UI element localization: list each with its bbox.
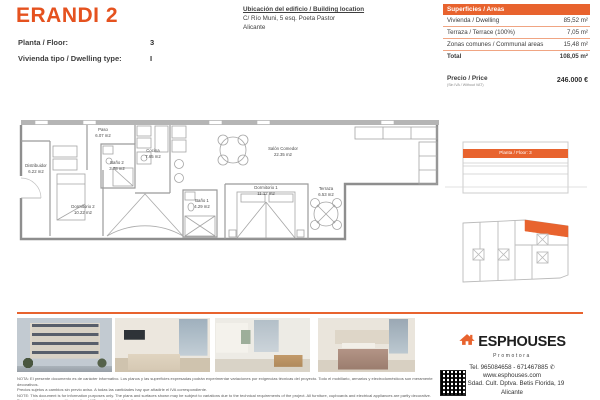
disclaimer-line: NOTA: El presente documento es de caráct… — [17, 376, 437, 387]
area-label: Terraza / Terrace (100%) — [447, 29, 515, 36]
photo-living-room — [115, 318, 210, 372]
room-label-dormitorio1: Dormitorio 111.12 m2 — [254, 185, 277, 196]
room-label-bano2: Baño 23.78 m2 — [109, 160, 125, 171]
area-value: 85,52 m² — [564, 17, 588, 24]
areas-total-row: Total 108,05 m² — [443, 51, 590, 62]
dwelling-type-row: Vivienda tipo / Dwelling type: I — [18, 54, 218, 63]
dwelling-type-label: Vivienda tipo / Dwelling type: — [18, 54, 122, 63]
room-label-terraza: Terraza6.53 m2 — [318, 186, 334, 197]
table-row: Zonas comunes / Communal areas 15,48 m² — [443, 39, 590, 51]
dwelling-type-value: I — [150, 54, 152, 63]
price-vat-note: (Sin IVA / Without VAT) — [447, 83, 484, 87]
areas-table-header: Superficies / Areas — [443, 4, 590, 15]
area-value: 15,48 m² — [564, 41, 588, 48]
brochure-page: ERANDI 2 Planta / Floor: 3 Vivienda tipo… — [0, 0, 600, 400]
room-label-cocina: Cocina7.65 m2 — [145, 148, 161, 159]
whatsapp-icon: ✆ — [550, 365, 555, 371]
area-value: 7,05 m² — [567, 29, 588, 36]
photo-kitchen — [215, 318, 310, 372]
floor-value: 3 — [150, 38, 154, 47]
total-label: Total — [447, 53, 461, 60]
floor-row: Planta / Floor: 3 — [18, 38, 218, 47]
table-row: Vivienda / Dwelling 85,52 m² — [443, 15, 590, 27]
building-location: Ubicación del edificio / Building locati… — [243, 5, 433, 32]
esphouses-house-icon — [458, 332, 476, 352]
table-row: Terraza / Terrace (100%) 7,05 m² — [443, 27, 590, 39]
room-label-bano1: Baño 14.29 m2 — [194, 198, 210, 209]
area-label: Vivienda / Dwelling — [447, 17, 499, 24]
price-label: Precio / Price — [447, 75, 488, 82]
brand-name: ESPHOUSES — [478, 334, 566, 350]
price-value: 246.000 € — [557, 77, 588, 84]
location-city: Alicante — [243, 23, 433, 32]
photo-building-exterior — [17, 318, 112, 372]
room-label-dormitorio2: Dormitorio 210.22 m2 — [71, 204, 94, 215]
room-label-distribuidor: Distribuidor6.22 m2 — [25, 163, 47, 174]
areas-table: Superficies / Areas Vivienda / Dwelling … — [443, 4, 590, 62]
location-street: C/ Río Muni, 5 esq. Poeta Pastor — [243, 14, 433, 23]
total-value: 108,05 m² — [560, 53, 588, 60]
area-label: Zonas comunes / Communal areas — [447, 41, 543, 48]
photo-bedroom — [318, 318, 415, 372]
legal-disclaimer: NOTA: El presente documento es de caráct… — [17, 376, 437, 400]
elevation-and-siteplan — [440, 130, 600, 300]
qr-code — [440, 370, 466, 396]
brand-subtitle: Promotora — [432, 353, 592, 359]
elevation-floor-badge: Planta / Floor: 3 — [463, 150, 568, 155]
page-title: ERANDI 2 — [16, 4, 118, 28]
room-label-paso: Paso6.07 m2 — [95, 127, 111, 138]
floor-plan-drawing — [15, 108, 445, 248]
floor-label: Planta / Floor: — [18, 38, 68, 47]
room-label-salon-comedor: Salón Comedor22.35 m2 — [268, 146, 298, 157]
floor-plan: Distribuidor6.22 m2 Paso6.07 m2 Baño 23.… — [15, 108, 445, 248]
location-title: Ubicación del edificio / Building locati… — [243, 5, 433, 14]
building-diagrams — [440, 130, 600, 300]
footer-divider — [17, 312, 583, 314]
